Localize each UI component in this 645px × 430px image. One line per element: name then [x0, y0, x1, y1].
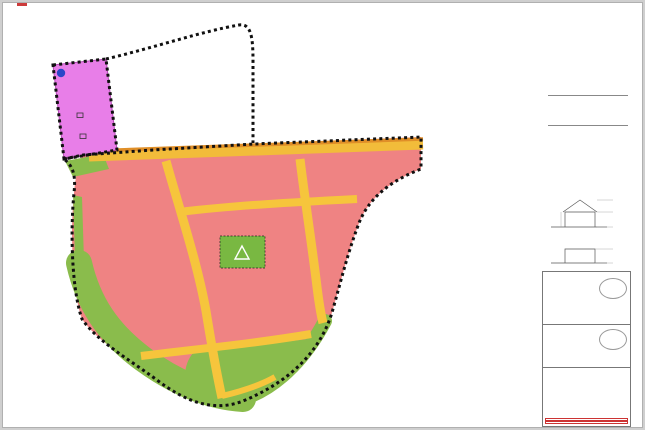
inkraft-section — [543, 325, 630, 368]
title-block — [542, 271, 631, 427]
scanned-plan-page — [0, 0, 645, 430]
plan-title-box — [545, 418, 628, 424]
playground-area — [220, 236, 265, 268]
satzung-section — [543, 272, 630, 325]
height-definition-diagrams — [549, 191, 641, 269]
seal-circle-1 — [599, 278, 627, 299]
plan-sheet — [2, 2, 643, 428]
roof-table — [548, 125, 628, 127]
planer-section — [543, 368, 630, 374]
seal-circle-2 — [599, 329, 627, 350]
tree-marker-blue — [57, 69, 65, 77]
schablone-table — [548, 95, 628, 97]
